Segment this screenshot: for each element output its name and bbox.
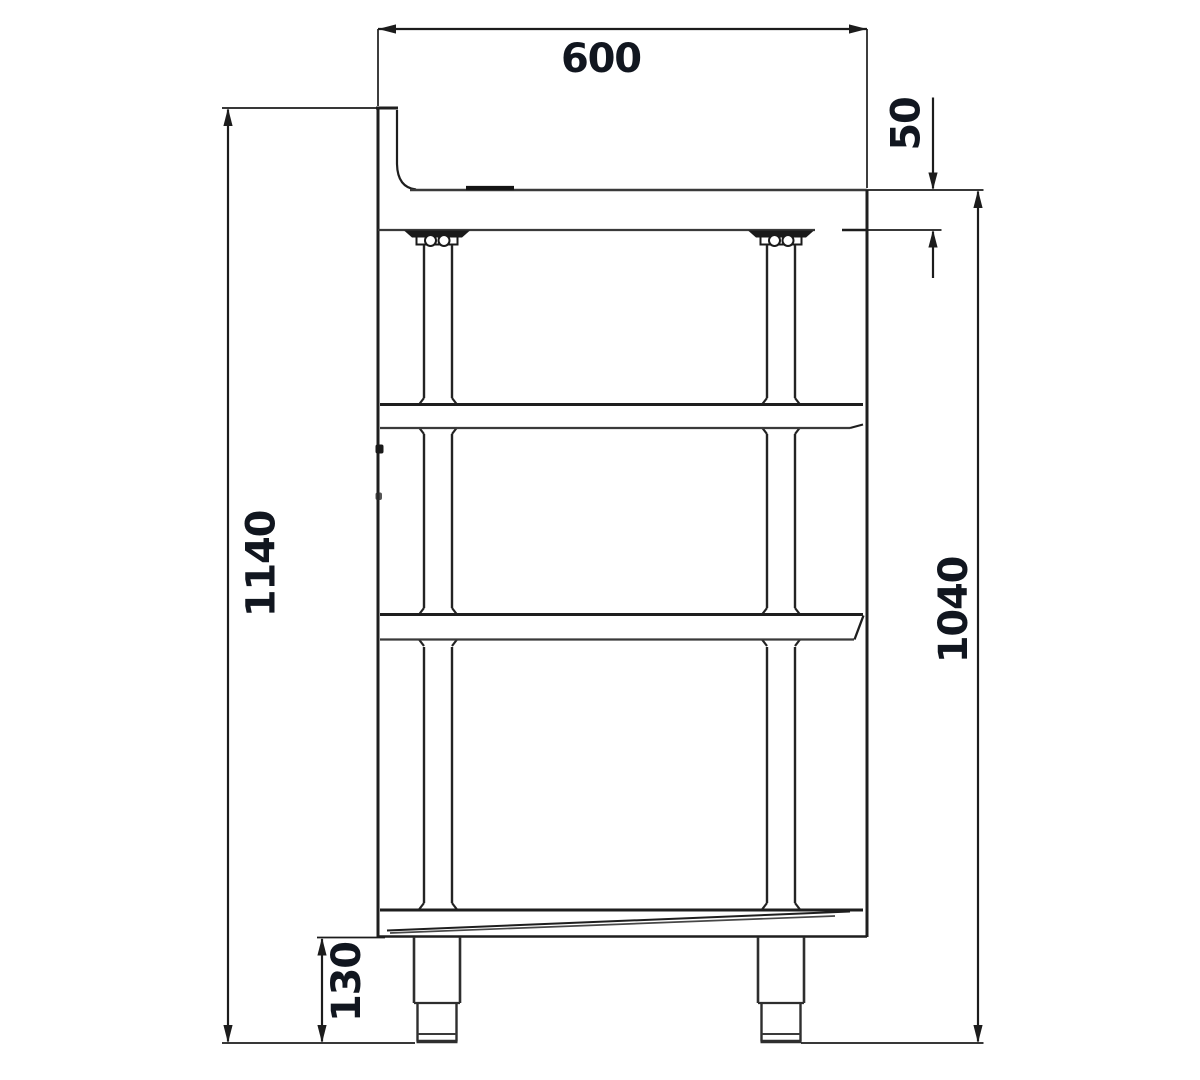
rear-face-weld-mark-1	[376, 445, 384, 454]
rear-foot-sides	[418, 1003, 457, 1042]
front-leg-mount	[748, 231, 814, 247]
dimension-overall-height: 1140	[222, 108, 415, 1043]
front-foot	[758, 937, 804, 1042]
rear-foot-collar-sides	[414, 937, 460, 1003]
base-shelf-slope-line-2	[390, 916, 835, 933]
rear-foot	[414, 937, 460, 1042]
dimension-foot-height: 130	[317, 938, 385, 1044]
rear-mount-bolt-right	[439, 235, 450, 246]
backsplash-inner-line	[397, 110, 416, 190]
front-foot-sides	[762, 1003, 801, 1042]
base-shelf	[378, 910, 867, 937]
shelf-upper-front-bevel	[850, 425, 863, 429]
shelf-upper	[380, 405, 863, 429]
rear-mount-bolt-left	[425, 235, 436, 246]
dim-label-overall-height: 1140	[239, 511, 285, 618]
arrowhead-up-icon	[223, 108, 232, 126]
arrowhead-down-icon	[317, 1025, 326, 1043]
technical-drawing-canvas: 600 50 1140	[0, 0, 1200, 1080]
arrowhead-right-icon	[849, 24, 867, 33]
front-foot-collar-sides	[758, 937, 804, 1003]
dim-label-foot-height: 130	[324, 942, 370, 1022]
arrowhead-down-icon	[223, 1025, 232, 1043]
dim-label-worktop-height: 1040	[931, 557, 977, 664]
arrowhead-up-icon	[928, 230, 937, 248]
arrowhead-down-icon	[928, 173, 937, 191]
shelf-lower	[380, 615, 864, 640]
dim-label-top-depth: 600	[561, 36, 641, 82]
dimensions: 600 50 1140	[222, 24, 984, 1043]
worktable-side-view	[376, 108, 868, 1042]
dim-label-top-thickness: 50	[884, 97, 930, 150]
rear-leg	[419, 245, 457, 910]
rear-leg-mount	[404, 231, 470, 247]
technical-drawing-page: 600 50 1140	[0, 0, 1200, 1080]
shelf-lower-front-bevel	[855, 616, 864, 640]
arrowhead-left-icon	[378, 24, 396, 33]
base-shelf-slope-line-1	[387, 912, 850, 931]
front-leg	[762, 245, 800, 910]
arrowhead-down-icon	[973, 1025, 982, 1043]
arrowhead-up-icon	[973, 190, 982, 208]
dimension-worktop-height: 1040	[801, 190, 984, 1043]
front-mount-bolt-right	[783, 235, 794, 246]
dimension-top-depth: 600	[378, 24, 867, 188]
rear-face-weld-mark-2	[376, 493, 383, 501]
front-mount-bolt-left	[769, 235, 780, 246]
